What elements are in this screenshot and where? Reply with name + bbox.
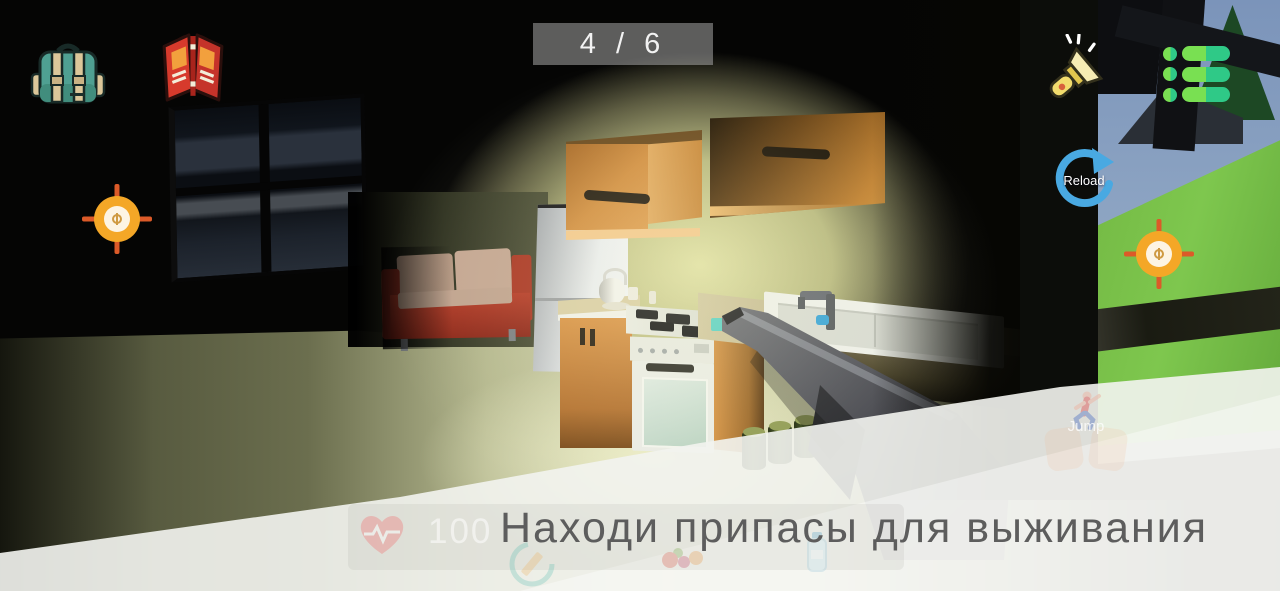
reload-button[interactable]: Reload [1048, 144, 1120, 216]
oven-handle [646, 363, 694, 373]
ammo-counter: 4 / 6 [533, 23, 713, 65]
burner [650, 321, 674, 332]
backpack-icon [32, 46, 104, 102]
flashlight-icon [1038, 34, 1114, 108]
menu-button[interactable] [1163, 46, 1233, 102]
book-icon [164, 35, 222, 100]
crosshair-icon [82, 184, 152, 254]
inventory-backpack-button[interactable] [30, 38, 106, 110]
tutorial-message: Находи припасы для выживания [500, 504, 1208, 553]
ammo-counter-value: 4 / 6 [580, 28, 666, 61]
lower-cabinet [560, 318, 632, 448]
target-crosshair[interactable] [80, 182, 154, 256]
game-screen: 4 / 6 Reload [0, 0, 1280, 591]
crosshair-icon [1124, 219, 1194, 289]
window-blinds [168, 93, 367, 283]
menu-icon [1163, 46, 1233, 61]
heart-icon [356, 510, 408, 558]
jump-button[interactable]: Jump [1040, 388, 1132, 476]
menu-icon [1163, 67, 1233, 82]
oven-window [642, 377, 708, 449]
jump-label: Jump [1040, 418, 1132, 435]
health-value: 100 [428, 512, 492, 552]
journal-book-button[interactable] [160, 28, 226, 108]
menu-icon [1163, 87, 1233, 102]
upper-cabinet [710, 112, 885, 218]
burner [636, 309, 658, 320]
flashlight-button[interactable] [1038, 34, 1116, 112]
reload-label: Reload [1048, 173, 1120, 188]
upper-cabinet [566, 130, 702, 242]
jar [649, 291, 656, 304]
couch [381, 245, 533, 350]
target-crosshair[interactable] [1122, 217, 1196, 291]
cup [628, 287, 638, 300]
cabinet-handle [762, 146, 830, 160]
